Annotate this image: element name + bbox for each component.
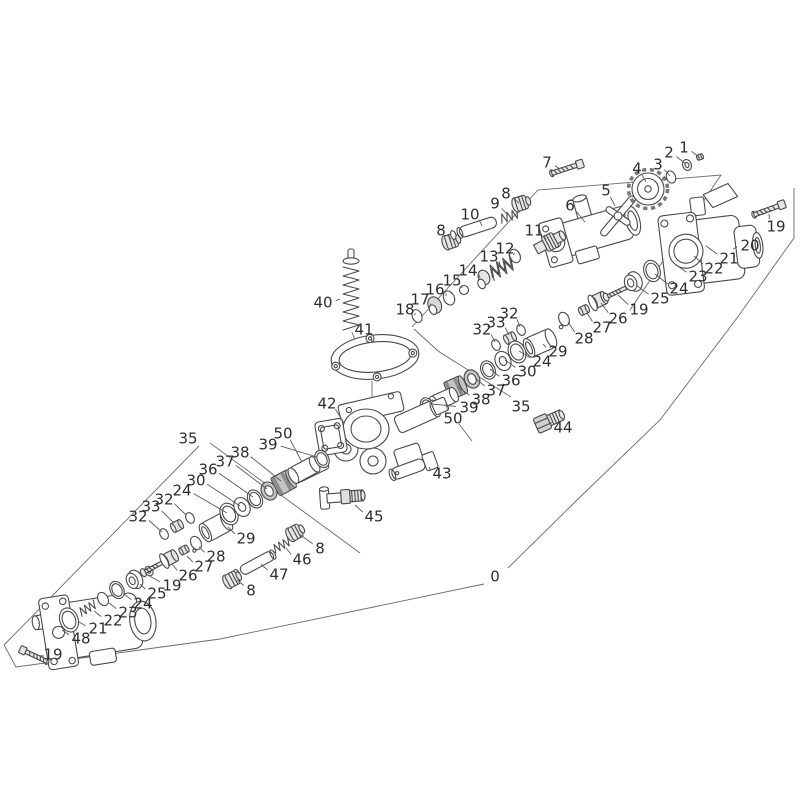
part-label-29: 29 [236, 529, 255, 547]
part-label-9: 9 [490, 194, 500, 212]
part-8-plug-c [284, 521, 308, 543]
part-28-ring [554, 311, 572, 330]
leader-line-33 [162, 511, 175, 523]
leader-line-30 [207, 484, 240, 506]
part-label-1: 1 [679, 138, 689, 156]
part-label-7: 7 [542, 153, 552, 171]
part-27-cylinder [178, 544, 190, 555]
part-label-10: 10 [460, 205, 479, 223]
part-label-50: 50 [443, 409, 462, 427]
part-45-elbow-fitting [319, 484, 365, 509]
part-label-8: 8 [315, 539, 325, 557]
leader-line-37 [236, 465, 267, 489]
part-label-19: 19 [766, 217, 785, 235]
part-24-oring [641, 258, 663, 284]
leader-line-9 [502, 208, 507, 214]
leader-line-19 [618, 295, 628, 305]
part-27-cylinder [577, 304, 590, 316]
leader-line-32 [149, 520, 162, 532]
part-label-6: 6 [565, 196, 575, 214]
assembly-valve-seat-row [410, 227, 568, 324]
part-label-19: 19 [629, 300, 648, 318]
part-label-46: 46 [292, 550, 311, 568]
leader-line-1 [692, 151, 700, 157]
part-label-28: 28 [574, 329, 593, 347]
part-label-18: 18 [395, 300, 414, 318]
part-8-plug-right [510, 193, 532, 213]
part-label-13: 13 [479, 247, 498, 265]
part-label-41: 41 [354, 320, 373, 338]
part-label-20: 20 [740, 236, 759, 254]
part-label-11: 11 [524, 221, 543, 239]
part-label-48: 48 [71, 629, 90, 647]
part-label-8: 8 [436, 221, 446, 239]
part-32-ring-b [490, 338, 502, 352]
part-40-spring [343, 249, 359, 330]
part-label-8: 8 [501, 184, 511, 202]
part-label-4: 4 [632, 159, 642, 177]
leader-line-38 [251, 457, 281, 481]
leader-line-7 [555, 166, 560, 169]
part-label-32: 32 [472, 320, 491, 338]
part-label-2: 2 [664, 143, 674, 161]
part-1-nut [696, 153, 704, 160]
part-2-washer [681, 158, 693, 171]
exploded-parts-diagram: 1234567891081112131415161718192021222324… [0, 0, 800, 800]
part-label-44: 44 [553, 418, 572, 436]
part-label-21: 21 [88, 619, 107, 637]
part-label-5: 5 [601, 181, 611, 199]
leader-line-45 [355, 505, 363, 512]
part-32-ring-c [158, 527, 170, 541]
leader-line-36 [219, 473, 253, 497]
leader-line-40 [336, 299, 340, 301]
part-label-25: 25 [650, 289, 669, 307]
part-label-45: 45 [364, 507, 383, 525]
part-label-0: 0 [490, 567, 500, 585]
part-label-32: 32 [128, 507, 147, 525]
leader-line-8 [299, 534, 313, 544]
leader-line-27 [187, 556, 193, 562]
part-label-40: 40 [313, 293, 332, 311]
part-label-27: 27 [592, 318, 611, 336]
part-7-bolt [549, 159, 585, 178]
leader-line-28 [199, 547, 205, 552]
part-label-15: 15 [442, 271, 461, 289]
part-label-24: 24 [172, 481, 191, 499]
leader-line-19 [146, 574, 160, 582]
part-label-3: 3 [653, 155, 663, 173]
part-32-ring-d [184, 511, 196, 525]
part-label-8: 8 [246, 581, 256, 599]
leader-line-5 [610, 197, 615, 206]
part-32-ring-a [515, 323, 527, 337]
part-label-23: 23 [688, 267, 707, 285]
leader-line-46 [286, 548, 291, 555]
part-label-24: 24 [669, 279, 688, 297]
leader-line-26 [172, 564, 177, 571]
part-label-39: 39 [258, 435, 277, 453]
leader-line-24 [194, 494, 227, 513]
part-26-nut [158, 547, 181, 569]
part-label-42: 42 [317, 394, 336, 412]
leader-line-32 [175, 504, 187, 515]
part-label-43: 43 [432, 464, 451, 482]
assembly-middle-row [418, 323, 567, 433]
part-label-37: 37 [215, 452, 234, 470]
part-41-cover-plate [329, 330, 421, 386]
diagram-canvas: 1234567891081112131415161718192021222324… [0, 0, 800, 800]
part-label-47: 47 [269, 565, 288, 583]
part-label-19: 19 [43, 645, 62, 663]
part-label-35: 35 [178, 429, 197, 447]
part-label-35: 35 [511, 397, 530, 415]
